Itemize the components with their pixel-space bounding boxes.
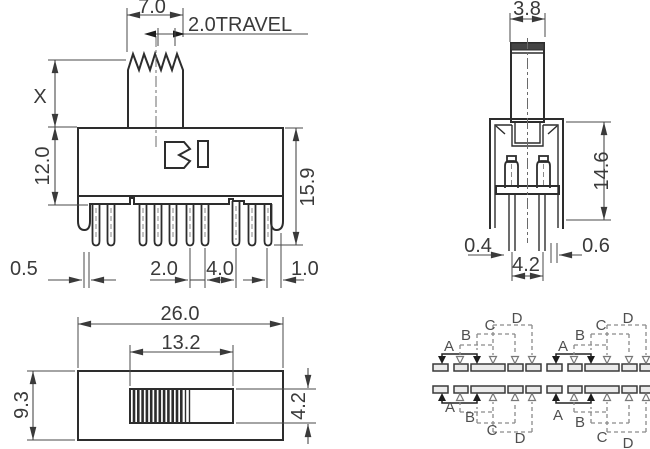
dim-pin-gap: 4.0 (206, 258, 234, 280)
dim-stem-height: X (33, 86, 46, 108)
schem-label-c: C (597, 429, 608, 446)
dim-bracket-gap: 0.6 (582, 235, 610, 257)
front-pins (93, 201, 272, 246)
dim-end-gap: 1.0 (291, 258, 319, 280)
dim-side-height: 14.6 (591, 152, 613, 191)
schematic: A B C D A B C D A B C D A B C D (433, 310, 650, 449)
side-body (490, 119, 563, 228)
schem-label-d: D (515, 430, 526, 447)
dim-leg-pitch: 4.2 (512, 254, 540, 276)
schem-label-a: A (558, 338, 568, 355)
dim-travel: 2.0TRAVEL (188, 14, 292, 36)
dim-leg-width: 0.4 (464, 235, 492, 257)
dim-knob-thickness: 3.8 (513, 0, 541, 20)
dim-slot-width: 4.2 (288, 392, 310, 420)
dim-body-length: 26.0 (161, 303, 200, 325)
dim-overall-height: 15.9 (297, 168, 319, 207)
top-view: 26.0 13.2 9.3 4.2 (11, 303, 316, 444)
dim-pin-a: 0.5 (10, 258, 38, 280)
schem-label-d: D (623, 435, 634, 449)
dim-body-height: 12.0 (32, 147, 54, 186)
dim-pin-pitch: 2.0 (150, 258, 178, 280)
top-knob-knurl (134, 390, 181, 422)
schem-label-d: D (512, 310, 523, 327)
arrow-icon (165, 142, 190, 168)
side-view: 3.8 14.6 0.4 0.6 4.2 (464, 0, 613, 281)
schem-label-b: B (575, 327, 585, 344)
schem-label-b: B (465, 409, 475, 426)
front-pedestals (90, 198, 271, 204)
front-left-bracket (78, 196, 90, 230)
schem-label-a: A (444, 338, 454, 355)
schem-label-c: C (487, 422, 498, 439)
dim-body-width: 9.3 (11, 391, 33, 419)
schem-label-a: A (445, 399, 455, 416)
schem-label-c: C (596, 317, 607, 334)
dim-slot-length: 13.2 (162, 332, 201, 354)
schem-label-a: A (553, 407, 563, 424)
front-right-bracket (271, 196, 283, 230)
schem-label-b: B (461, 327, 471, 344)
front-body (78, 128, 283, 196)
schem-label-d: D (623, 310, 634, 327)
bar-icon (198, 141, 208, 167)
dim-knob-width: 7.0 (138, 0, 166, 18)
schem-label-c: C (485, 317, 496, 334)
front-view: 7.0 2.0TRAVEL X 12.0 15.9 (10, 0, 319, 288)
technical-drawing: 7.0 2.0TRAVEL X 12.0 15.9 (0, 0, 650, 449)
front-pins-centerlines (96, 206, 268, 240)
schem-label-b: B (575, 414, 585, 431)
